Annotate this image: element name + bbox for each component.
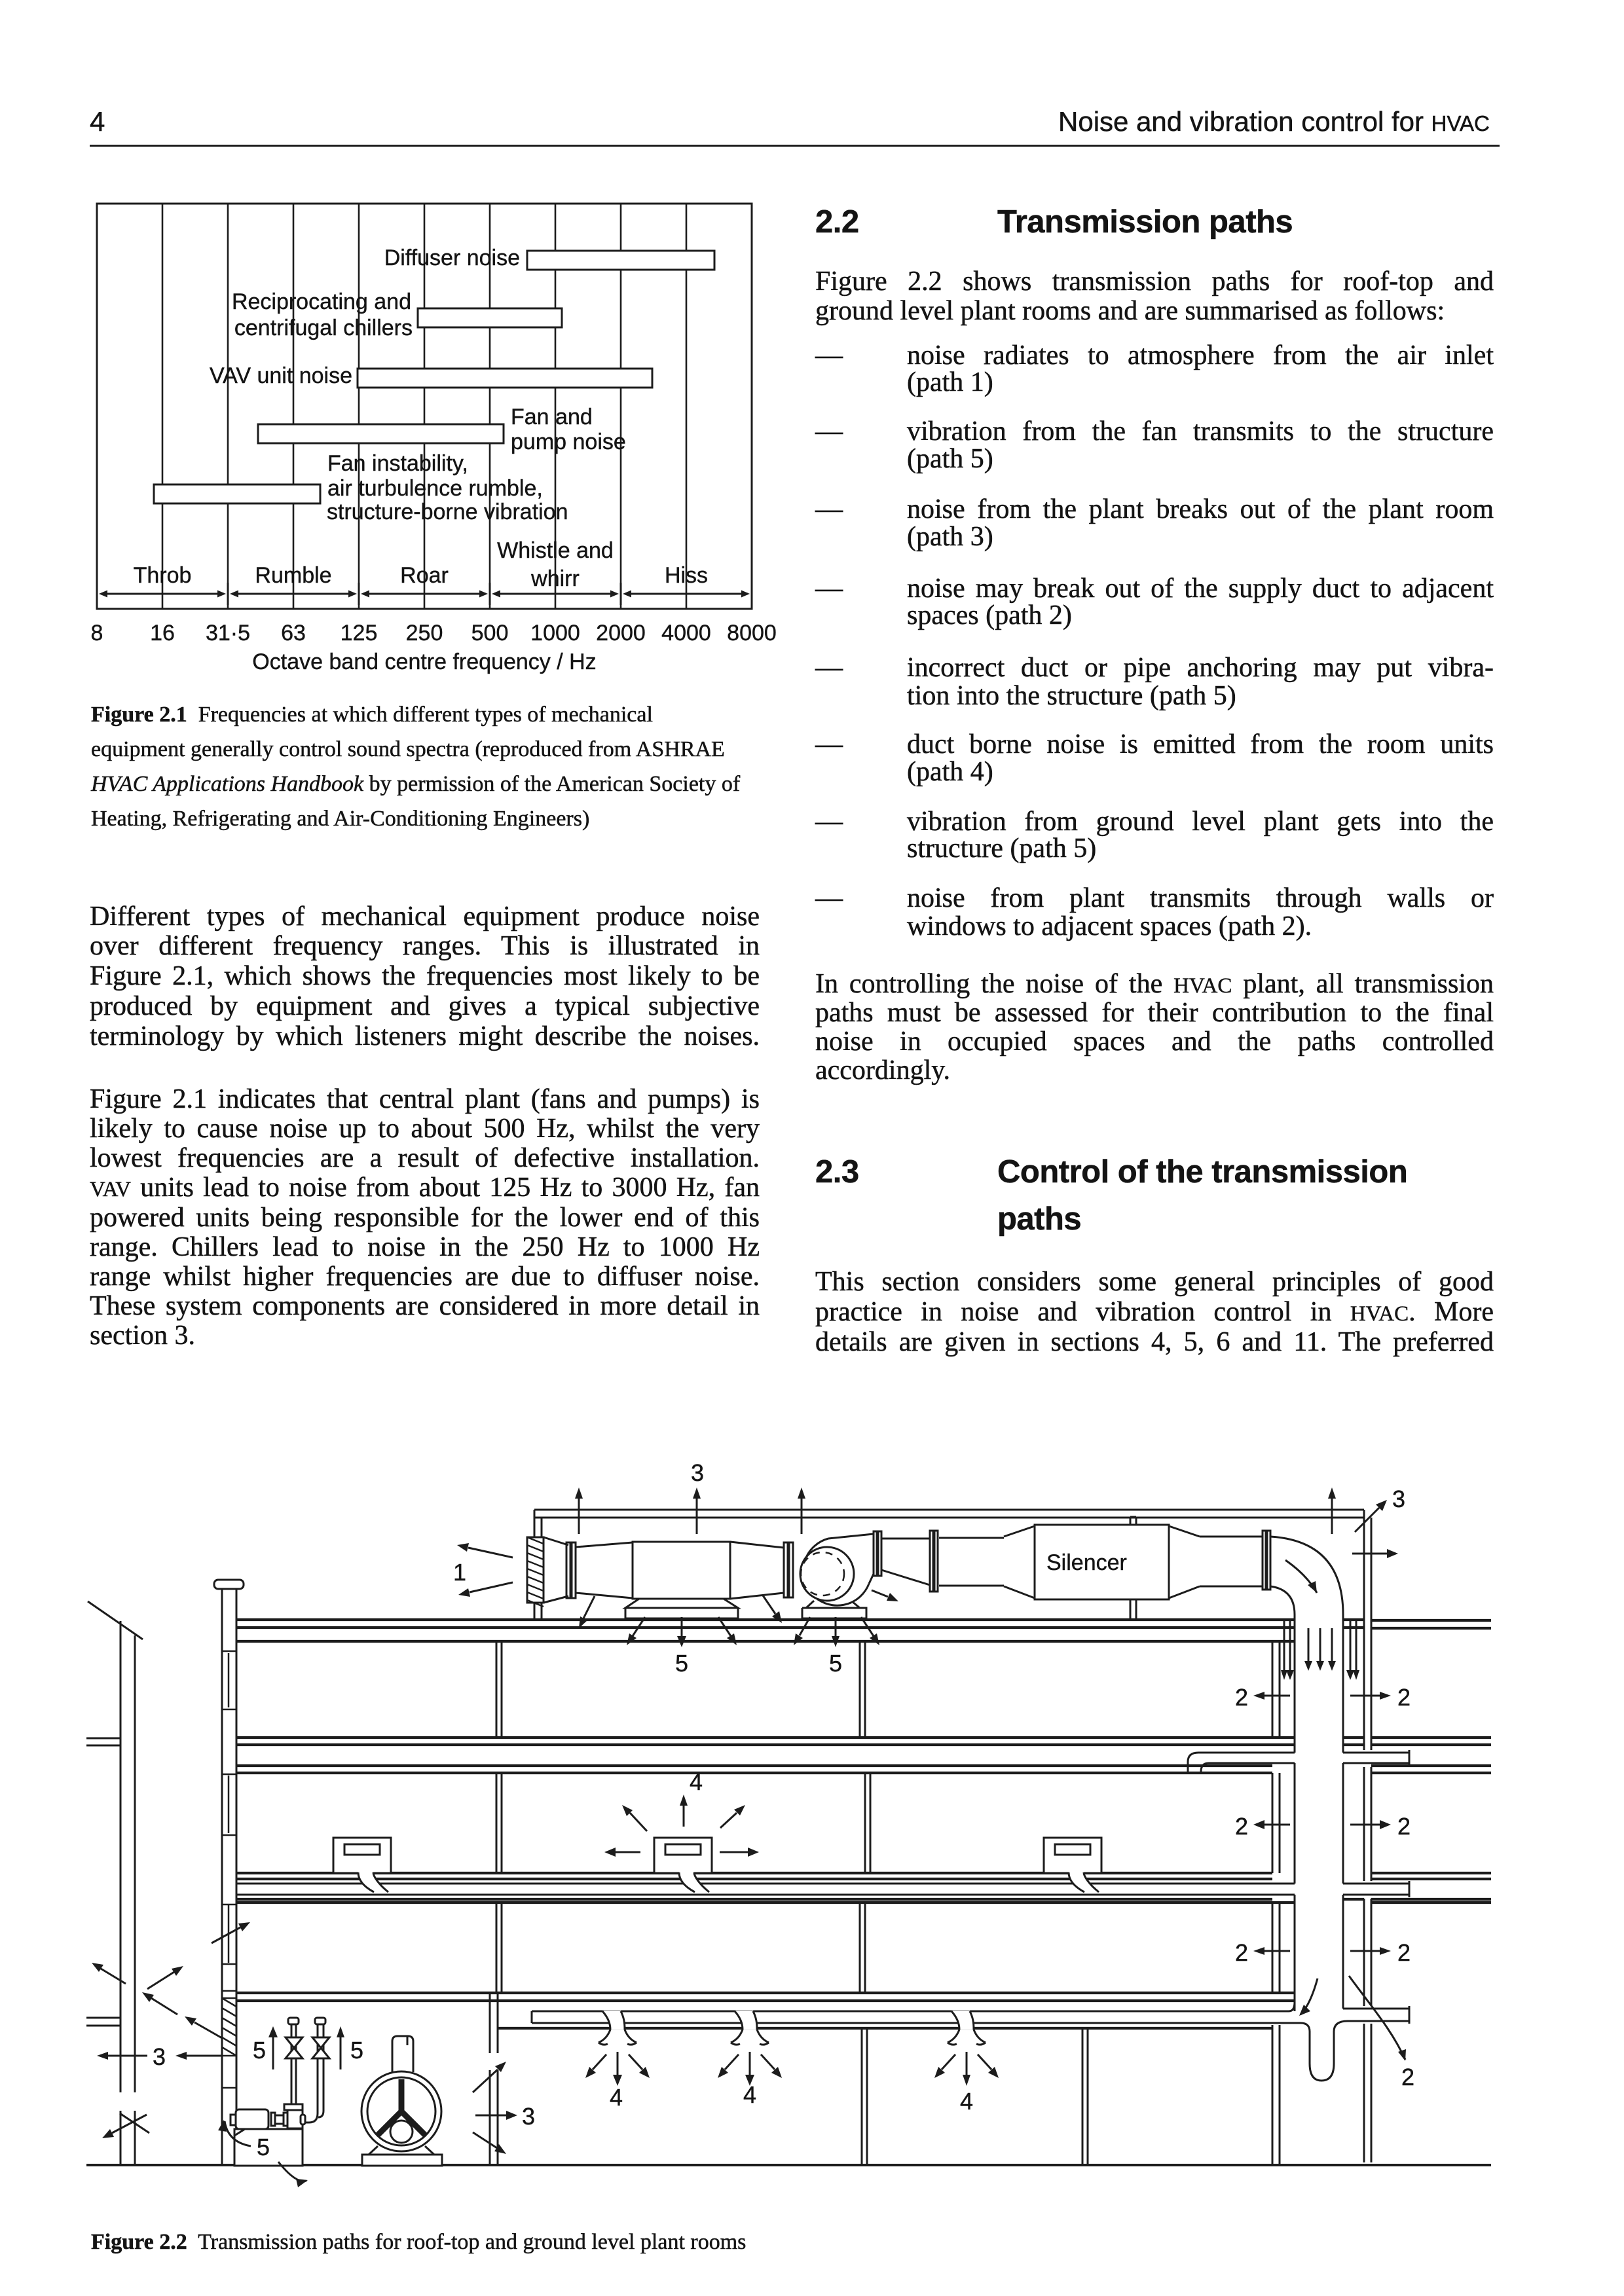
svg-text:structure-borne vibration: structure-borne vibration (327, 500, 568, 524)
svg-text:2: 2 (1397, 1813, 1411, 1840)
svg-text:2: 2 (1397, 1684, 1411, 1711)
svg-text:Throb: Throb (134, 563, 192, 588)
svg-text:Silencer: Silencer (1046, 1550, 1127, 1575)
svg-text:Diffuser noise: Diffuser noise (384, 246, 520, 270)
svg-text:3: 3 (1392, 1485, 1405, 1512)
svg-text:5: 5 (253, 2037, 266, 2064)
svg-text:1000: 1000 (530, 621, 580, 646)
svg-text:8: 8 (91, 621, 103, 646)
svg-text:500: 500 (471, 621, 509, 646)
svg-text:Octave band centre frequency /: Octave band centre frequency / Hz (252, 649, 596, 674)
svg-text:Whistle and: Whistle and (497, 538, 614, 563)
svg-text:4000: 4000 (661, 621, 711, 646)
svg-text:air turbulence rumble,: air turbulence rumble, (327, 476, 543, 501)
svg-text:5: 5 (257, 2134, 270, 2160)
svg-text:2: 2 (1401, 2064, 1414, 2090)
svg-text:whirr: whirr (530, 566, 580, 591)
svg-text:VAV unit noise: VAV unit noise (210, 363, 352, 388)
svg-text:Reciprocating and: Reciprocating and (232, 289, 411, 314)
svg-text:Fan and: Fan and (511, 405, 593, 429)
svg-text:8000: 8000 (727, 621, 777, 646)
svg-text:2: 2 (1235, 1684, 1248, 1711)
svg-text:4: 4 (960, 2088, 973, 2115)
svg-text:centrifugal chillers: centrifugal chillers (234, 316, 413, 340)
svg-text:2000: 2000 (596, 621, 646, 646)
svg-text:4: 4 (690, 1768, 703, 1795)
svg-text:2: 2 (1235, 1813, 1248, 1840)
svg-text:5: 5 (829, 1650, 842, 1677)
svg-text:pump noise: pump noise (511, 429, 626, 454)
svg-text:5: 5 (675, 1650, 688, 1677)
svg-text:5: 5 (350, 2037, 363, 2064)
svg-text:Hiss: Hiss (665, 563, 708, 588)
svg-text:16: 16 (150, 621, 175, 646)
svg-text:Fan instability,: Fan instability, (327, 451, 468, 476)
svg-text:3: 3 (691, 1459, 704, 1486)
svg-text:3: 3 (153, 2043, 166, 2070)
svg-text:3: 3 (522, 2103, 535, 2130)
svg-text:31·5: 31·5 (206, 621, 250, 646)
svg-text:4: 4 (743, 2081, 756, 2108)
svg-text:2: 2 (1235, 1939, 1248, 1966)
svg-text:Roar: Roar (400, 563, 449, 588)
svg-text:2: 2 (1397, 1939, 1411, 1966)
svg-text:250: 250 (406, 621, 443, 646)
svg-text:63: 63 (281, 621, 306, 646)
svg-text:4: 4 (610, 2084, 623, 2111)
svg-text:1: 1 (453, 1559, 466, 1586)
svg-text:125: 125 (341, 621, 378, 646)
svg-text:Rumble: Rumble (255, 563, 331, 588)
